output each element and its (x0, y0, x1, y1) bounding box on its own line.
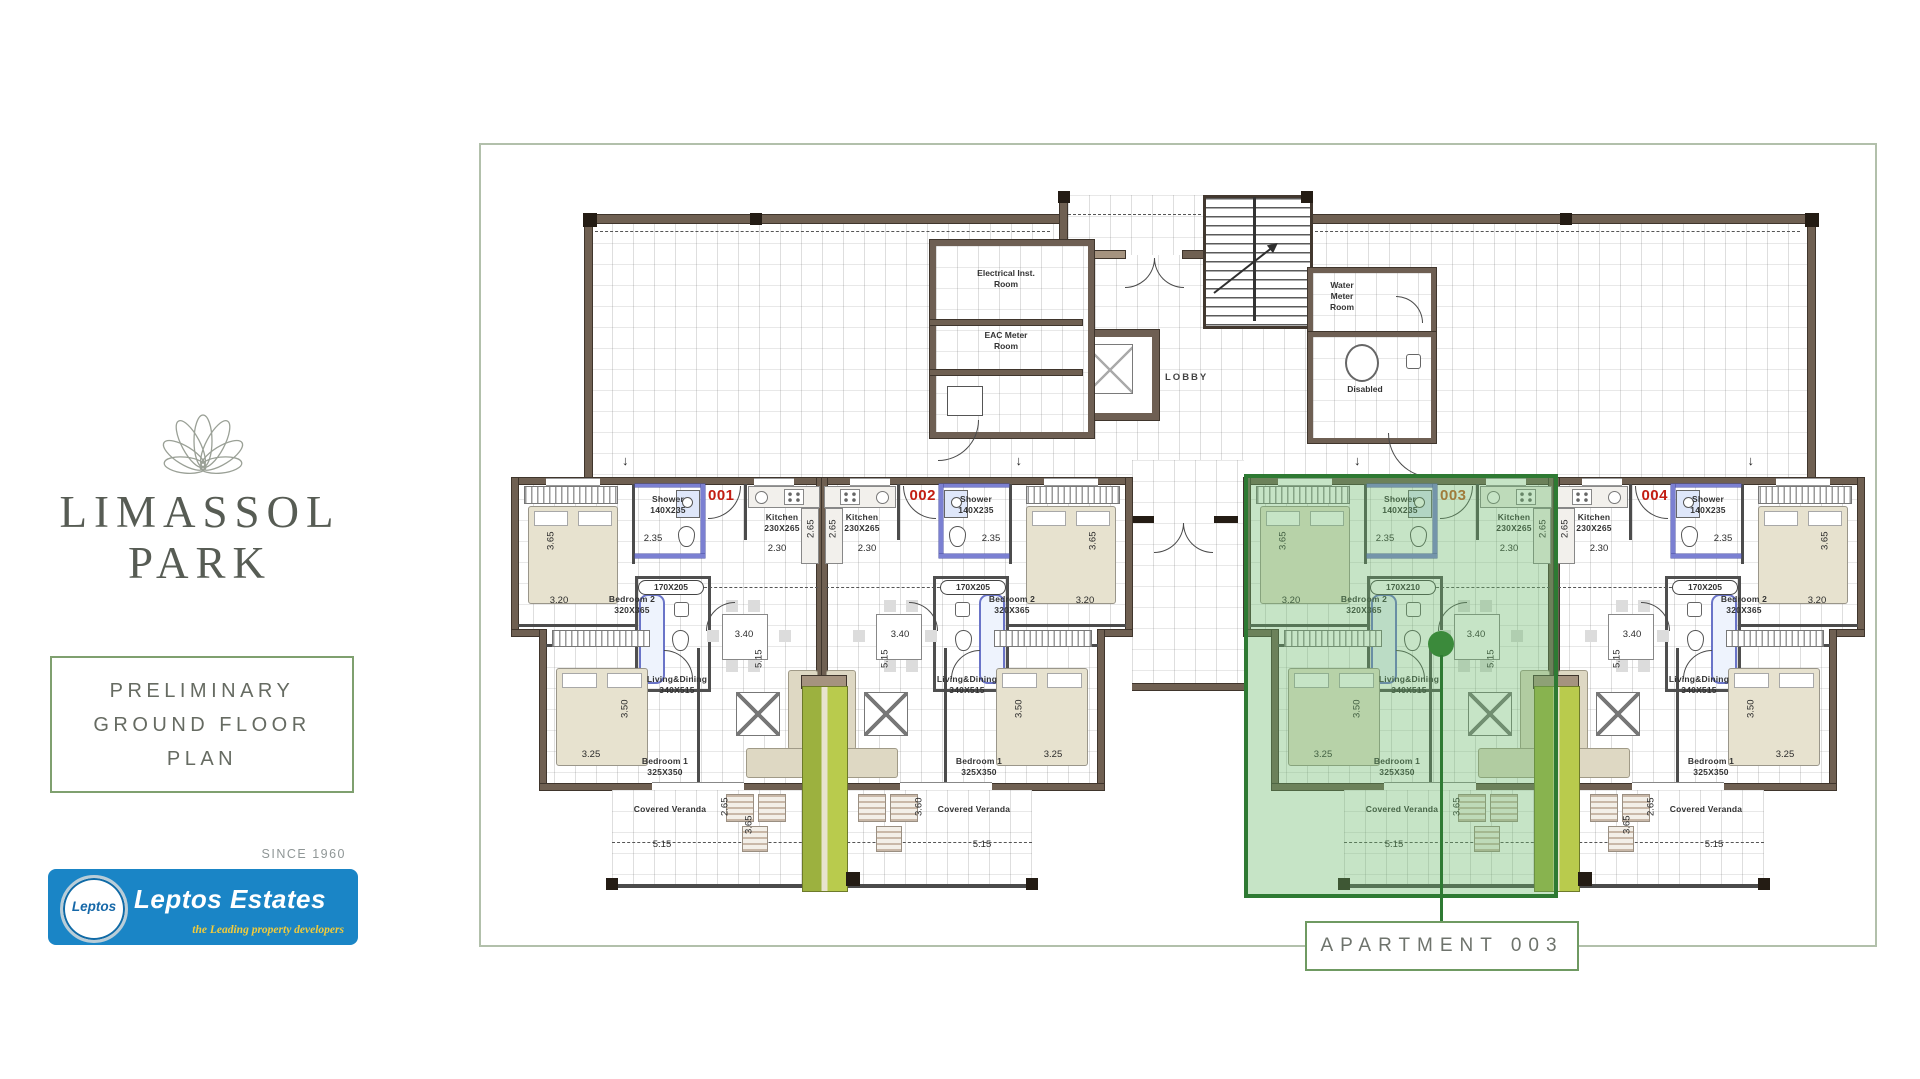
window (546, 478, 600, 486)
entry-arrow-icon: ↓ (622, 454, 629, 467)
exterior-notch (1836, 636, 1864, 790)
bedroom2-wall (1009, 484, 1012, 564)
kitchen-serving-line (694, 587, 818, 588)
corridor-end-wall (1132, 684, 1244, 690)
wardrobe (1026, 486, 1120, 504)
shower-wall (939, 484, 943, 558)
electrical-room-label: Electrical Inst. Room (945, 268, 1067, 290)
bedroom2-label: Bedroom 2 320X365 (952, 594, 1072, 615)
bedroom2-dim: 3.65 (1088, 526, 1098, 556)
veranda-dim: 5.15 (644, 840, 680, 850)
kitchen-serving-line (826, 587, 950, 588)
living-dim: 5.15 (754, 644, 764, 674)
bathroom-size: 170X205 (638, 580, 704, 595)
leptos-badge-icon: Leptos (60, 875, 128, 943)
bedroom2-dim: 3.65 (546, 526, 556, 556)
notch-side-wall (540, 630, 546, 790)
kitchen-dim: 2.65 (828, 514, 838, 544)
veranda-dim: 3.65 (1622, 810, 1632, 840)
window (1776, 478, 1830, 486)
double-bed (1758, 506, 1848, 604)
notch-side-wall (1098, 630, 1104, 790)
plan-title: PRELIMINARY GROUND FLOOR PLAN (93, 674, 310, 776)
kitchen-serving-line (1558, 587, 1682, 588)
toilet (678, 526, 695, 547)
bedroom2-dim: 3.20 (1800, 596, 1834, 606)
bedroom1-dim: 3.50 (620, 694, 630, 724)
utility-divider-wall (930, 370, 1082, 375)
veranda-dim: 2.65 (720, 792, 730, 822)
living-dim: 5.15 (880, 644, 890, 674)
veranda-dim: 3.60 (914, 792, 924, 822)
entry-arrow-icon: ↓ (1748, 454, 1755, 467)
wall-stub (1214, 516, 1238, 523)
living-dim: 5.15 (1612, 644, 1622, 674)
cooker-hob (1572, 489, 1592, 505)
outdoor-chair (758, 794, 786, 822)
shower-dim: 2.35 (976, 534, 1006, 544)
bedroom1-dim: 3.50 (1014, 694, 1024, 724)
kitchen-dim: 2.30 (760, 544, 794, 554)
double-bed (1026, 506, 1116, 604)
apartment-003-highlight (1244, 474, 1558, 898)
cooker-hob (784, 489, 804, 505)
outer-side-wall (1126, 478, 1132, 636)
exterior-wall (1808, 215, 1815, 478)
outer-side-wall (512, 478, 518, 636)
veranda-dim: 3.65 (744, 810, 754, 840)
window (754, 478, 794, 486)
double-bed (528, 506, 618, 604)
unit-number: 001 (708, 488, 735, 503)
shower-wall (701, 484, 705, 558)
exterior-wall (585, 215, 1060, 223)
column (1301, 191, 1313, 203)
veranda-dim: 5.15 (964, 840, 1000, 850)
window (850, 478, 890, 486)
wardrobe (1726, 630, 1824, 647)
column (1560, 213, 1572, 225)
corner-column (1758, 878, 1770, 890)
floor-plan-sheet: LIMASSOL PARK PRELIMINARY GROUND FLOOR P… (0, 0, 1920, 1079)
outdoor-table (876, 826, 902, 852)
lobby-label: LOBBY (1165, 372, 1208, 383)
shower-wall (939, 554, 1009, 558)
bathroom-size: 170X205 (1672, 580, 1738, 595)
veranda-parapet (612, 884, 822, 888)
notch-side-wall (1830, 630, 1836, 790)
veranda-004: Covered Veranda 5.15 2.65 3.65 (1554, 790, 1864, 890)
bedroom2-label: Bedroom 2 320X365 (1684, 594, 1804, 615)
column (583, 213, 597, 227)
veranda-label: Covered Veranda (924, 804, 1024, 815)
cooker-hob (840, 489, 860, 505)
bedroom2-dim: 3.20 (542, 596, 576, 606)
unit-number: 002 (909, 488, 936, 503)
leptos-estates-logo: Leptos Leptos Estates the Leading proper… (48, 869, 358, 945)
since-label: SINCE 1960 (196, 847, 346, 861)
veranda-dashed-line (822, 842, 1032, 843)
entry-arrow-icon: ↓ (1016, 454, 1023, 467)
disabled-toilet (1345, 344, 1379, 382)
bedroom1-dim: 3.25 (1768, 750, 1802, 760)
upper-floor-area (591, 222, 1807, 478)
logo-tagline: the Leading property developers (134, 924, 344, 936)
wall-stub (1130, 516, 1154, 523)
exterior-notch (1104, 636, 1132, 790)
eac-room-label: EAC Meter Room (945, 330, 1067, 352)
corner-column (1026, 878, 1038, 890)
lotus-flower-logo-icon (148, 393, 258, 481)
apartment-003-marker-dot (1428, 631, 1454, 657)
entry-arrow-icon: ↓ (1354, 454, 1361, 467)
callout-leader-line (1440, 655, 1443, 923)
shower-label: Shower 140X235 (636, 494, 700, 515)
shower-wall (635, 484, 705, 487)
central-corridor-floor (1132, 460, 1244, 690)
kitchen-dim: 2.65 (806, 514, 816, 544)
column (1805, 213, 1819, 227)
veranda-label: Covered Veranda (620, 804, 720, 815)
shaft-symbol (864, 692, 908, 736)
shaft-symbol (1596, 692, 1640, 736)
toilet (949, 526, 966, 547)
apartment-pair-left: ↓ 001 Shower 140X235 2.35 Kitchen 230X26… (512, 478, 1132, 898)
kitchen-counter (1556, 486, 1628, 508)
table-dim: 3.40 (726, 630, 762, 640)
kitchen-dim: 2.30 (1582, 544, 1616, 554)
apartment-001: ↓ 001 Shower 140X235 2.35 Kitchen 230X26… (512, 478, 822, 790)
shower-wall (1671, 484, 1675, 558)
shower-wall (1671, 484, 1741, 487)
bedroom2-dim: 3.65 (1820, 526, 1830, 556)
apartment-004: ↓ 004 Shower 140X235 2.35 Kitchen 230X26… (1554, 478, 1864, 790)
brand-title: LIMASSOL PARK (30, 487, 370, 590)
wardrobe (552, 630, 650, 647)
bedroom1-label: Bedroom 1 325X350 (620, 756, 710, 777)
shower-wall (939, 484, 1009, 487)
bedroom1-dim: 3.25 (574, 750, 608, 760)
wardrobe (994, 630, 1092, 647)
canopy-dashed-line (595, 231, 1050, 232)
living-label: Living&Dining 340X515 (928, 674, 1006, 695)
shower-label: Shower 140X235 (1676, 494, 1740, 515)
bedroom2-label: Bedroom 2 320X365 (572, 594, 692, 615)
utility-divider-wall (930, 320, 1082, 325)
exterior-notch (512, 636, 540, 790)
bedroom2-wall (1741, 484, 1744, 564)
column (846, 872, 860, 886)
exterior-wall (1303, 215, 1815, 223)
table-dim: 3.40 (882, 630, 918, 640)
veranda-dim: 5.15 (1696, 840, 1732, 850)
bedroom2-wall (518, 624, 635, 627)
corner-column (606, 878, 618, 890)
apartment-003-callout: APARTMENT 003 (1305, 921, 1579, 971)
living-label: Living&Dining 340X515 (1660, 674, 1738, 695)
veranda-label: Covered Veranda (1656, 804, 1756, 815)
window (1582, 478, 1622, 486)
shower-wall (1671, 554, 1741, 558)
unit-number: 004 (1641, 488, 1668, 503)
planter (802, 686, 848, 892)
bedroom1-dim: 3.50 (1746, 694, 1756, 724)
living-label: Living&Dining 340X515 (638, 674, 716, 695)
shower-wall (635, 554, 705, 558)
bedroom2-wall (632, 484, 635, 564)
bedroom2-wall (1741, 624, 1858, 627)
veranda-002: Covered Veranda 5.15 3.60 (822, 790, 1132, 890)
shower-label: Shower 140X235 (944, 494, 1008, 515)
bedroom1-dim: 3.25 (1036, 750, 1070, 760)
canopy-dashed-line (1315, 231, 1800, 232)
kitchen-dim: 2.30 (850, 544, 884, 554)
bedroom2-dim: 3.20 (1068, 596, 1102, 606)
plan-title-box: PRELIMINARY GROUND FLOOR PLAN (50, 656, 354, 793)
shower-dim: 2.35 (638, 534, 668, 544)
veranda-001: Covered Veranda 5.15 2.65 3.65 (512, 790, 822, 890)
wash-basin (1406, 354, 1421, 369)
window (1044, 478, 1098, 486)
veranda-dashed-line (1554, 842, 1764, 843)
logo-name: Leptos Estates (134, 884, 326, 915)
exterior-wall (585, 215, 592, 478)
kitchen-counter (824, 486, 896, 508)
table-dim: 3.40 (1614, 630, 1650, 640)
wardrobe (1758, 486, 1852, 504)
column (750, 213, 762, 225)
shower-dim: 2.35 (1708, 534, 1738, 544)
bedroom1-label: Bedroom 1 325X350 (934, 756, 1024, 777)
outdoor-chair (1590, 794, 1618, 822)
outer-side-wall (1858, 478, 1864, 636)
water-room-label: Water Meter Room (1316, 280, 1368, 313)
outdoor-chair (858, 794, 886, 822)
bedroom2-wall (1009, 624, 1126, 627)
lobby-entrance-wall (1183, 251, 1203, 258)
bedroom1-label: Bedroom 1 325X350 (1666, 756, 1756, 777)
staircase (1203, 195, 1313, 329)
veranda-dim: 2.65 (1646, 792, 1656, 822)
toilet (1681, 526, 1698, 547)
wardrobe (524, 486, 618, 504)
shaft-symbol (736, 692, 780, 736)
callout-label: APARTMENT 003 (1320, 935, 1563, 957)
utility-cabinet (947, 386, 983, 416)
kitchen-dim: 2.65 (1560, 514, 1570, 544)
bathroom-size: 170X205 (940, 580, 1006, 595)
disabled-label: Disabled (1330, 384, 1400, 395)
canopy-dashed-line (1068, 214, 1201, 215)
column (1058, 191, 1070, 203)
apartment-002: ↓ 002 Shower 140X235 2.35 Kitchen 230X26… (822, 478, 1132, 790)
column (1578, 872, 1592, 886)
